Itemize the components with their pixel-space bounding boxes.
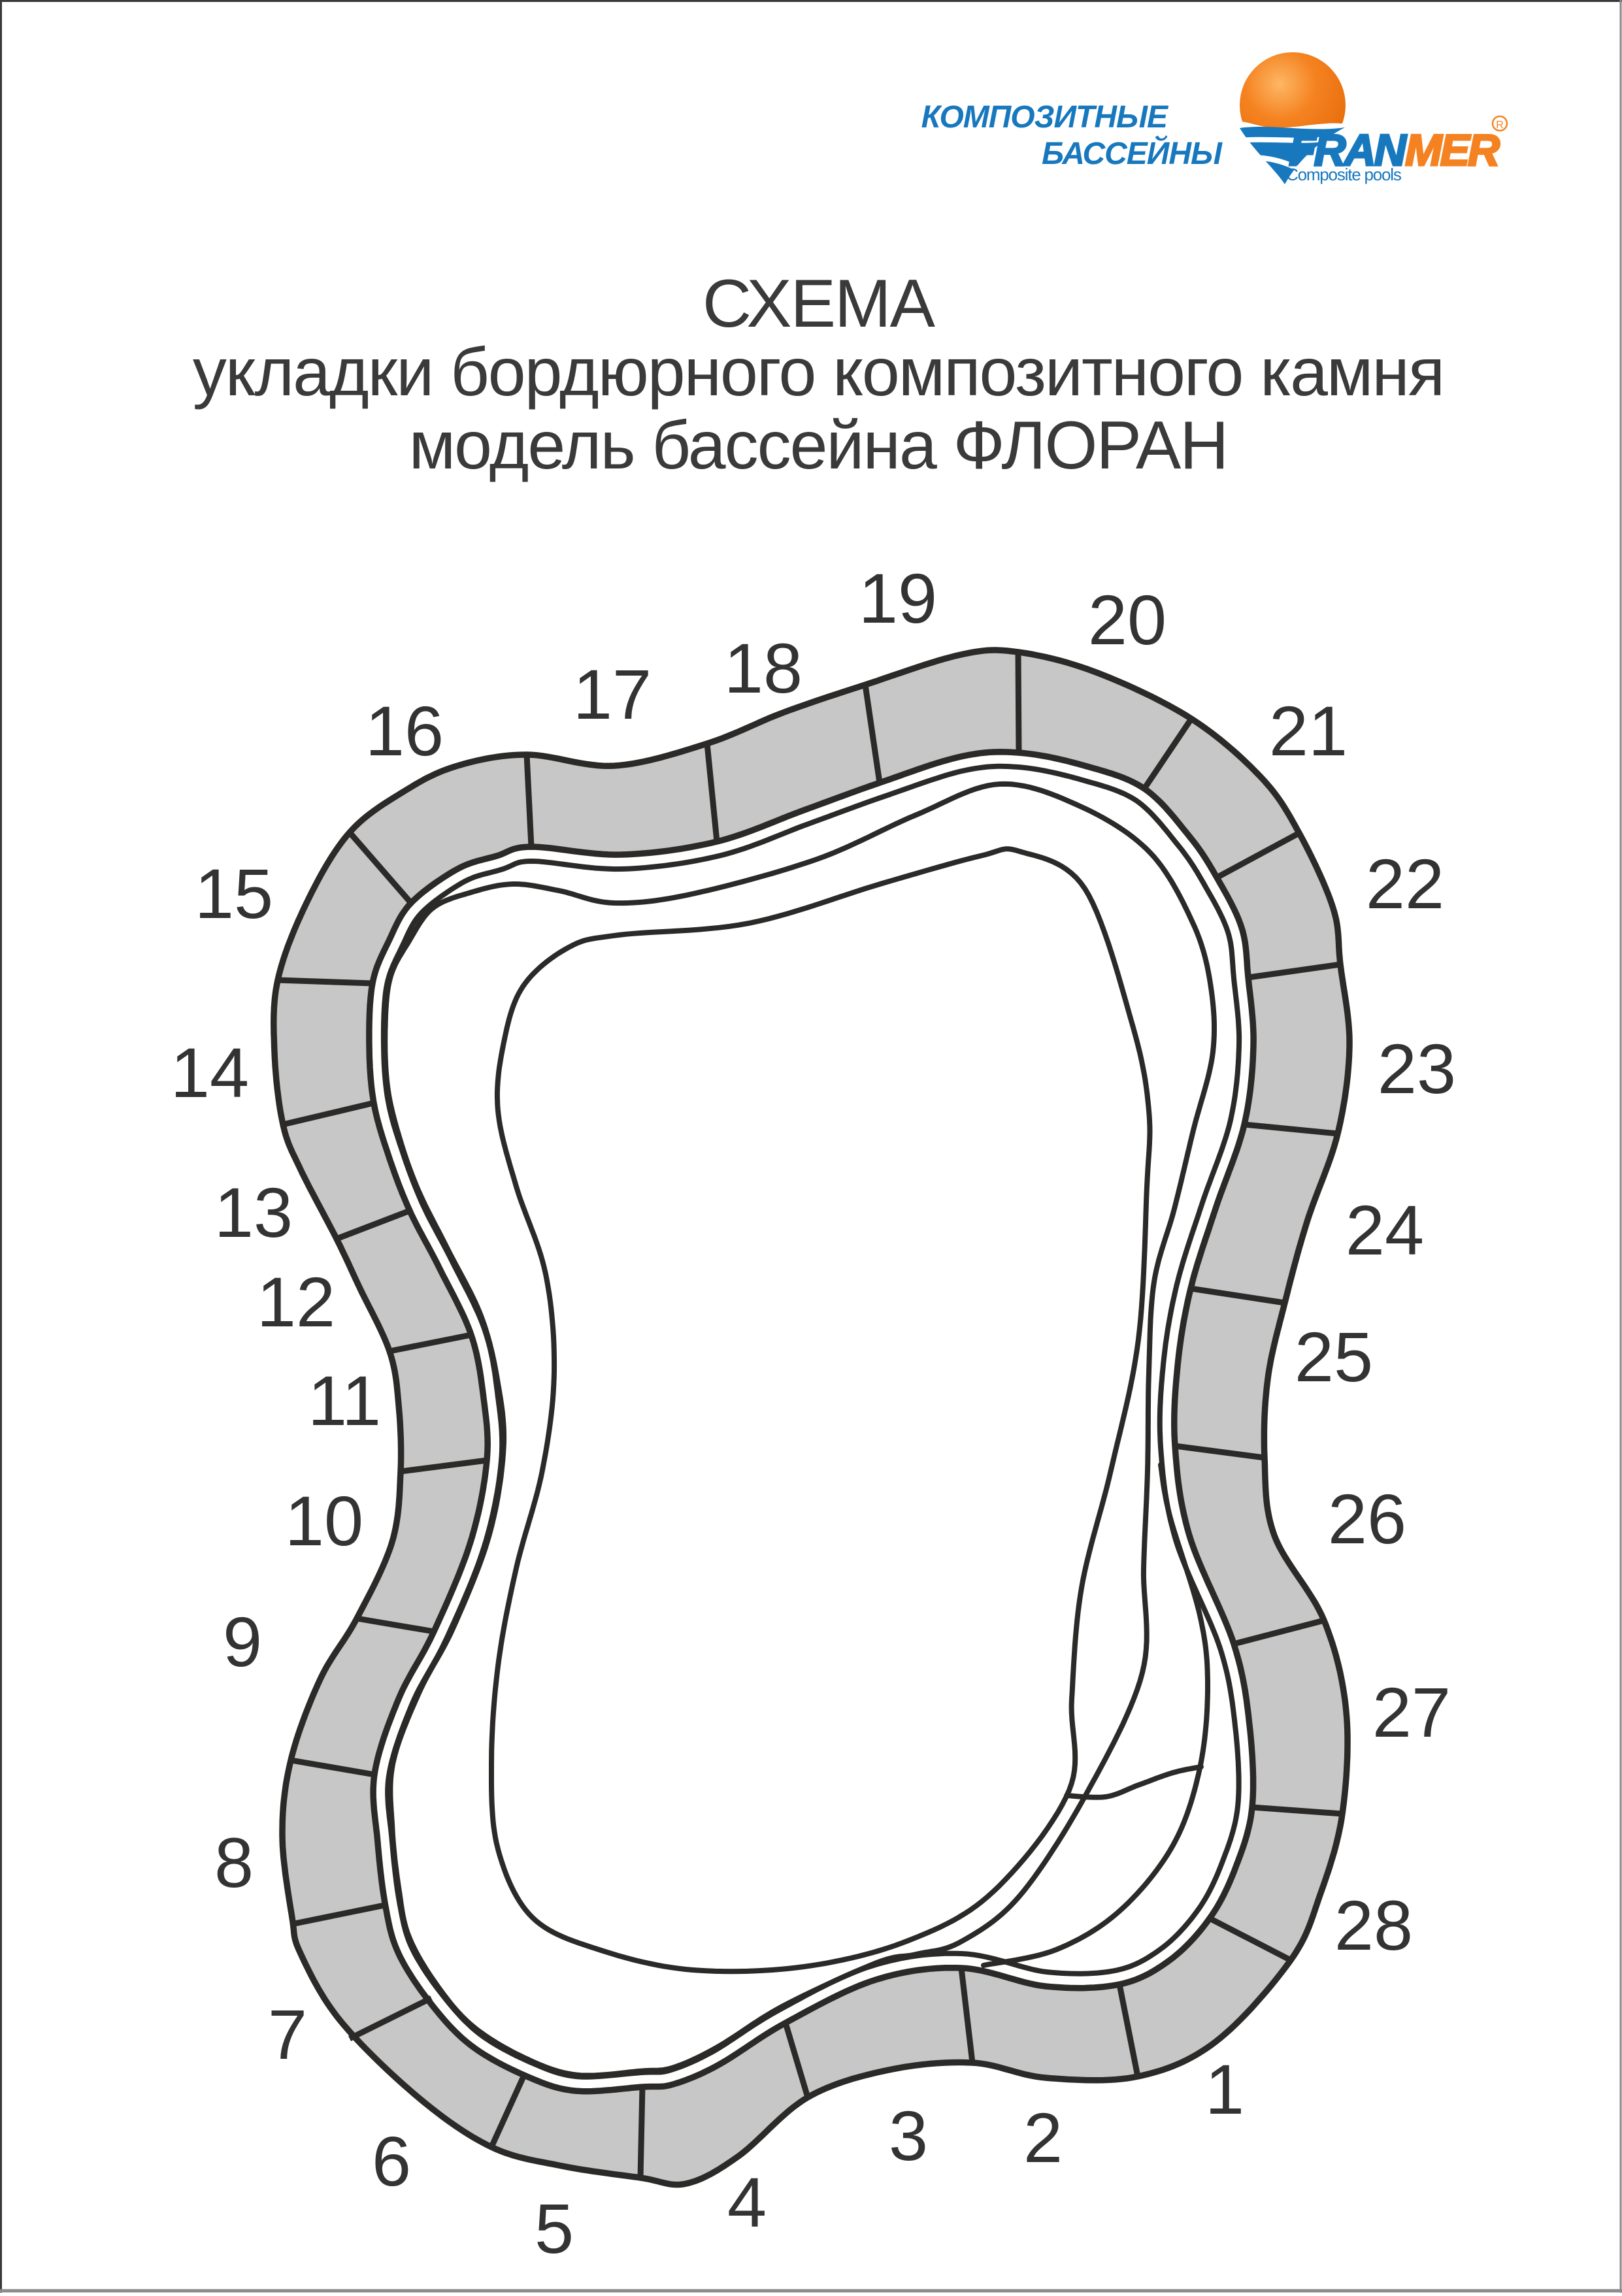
svg-text:21: 21 bbox=[1269, 691, 1348, 770]
svg-text:20: 20 bbox=[1088, 580, 1167, 659]
svg-text:модель бассейна ФЛОРАН: модель бассейна ФЛОРАН bbox=[409, 408, 1228, 484]
svg-text:10: 10 bbox=[285, 1481, 363, 1560]
svg-text:R: R bbox=[1496, 120, 1504, 131]
svg-text:22: 22 bbox=[1366, 844, 1444, 923]
svg-text:27: 27 bbox=[1372, 1673, 1451, 1752]
svg-text:13: 13 bbox=[214, 1173, 293, 1252]
svg-text:БАССЕЙНЫ: БАССЕЙНЫ bbox=[1042, 135, 1223, 171]
svg-text:15: 15 bbox=[195, 854, 273, 933]
svg-text:14: 14 bbox=[171, 1033, 249, 1112]
svg-text:4: 4 bbox=[727, 2163, 767, 2242]
svg-text:17: 17 bbox=[573, 655, 652, 734]
svg-text:24: 24 bbox=[1346, 1190, 1424, 1270]
svg-text:8: 8 bbox=[214, 1823, 254, 1902]
svg-text:2: 2 bbox=[1023, 2098, 1063, 2177]
svg-text:КОМПОЗИТНЫЕ: КОМПОЗИТНЫЕ bbox=[921, 100, 1169, 135]
svg-text:12: 12 bbox=[257, 1262, 335, 1341]
svg-text:Composite pools: Composite pools bbox=[1286, 165, 1402, 184]
svg-text:25: 25 bbox=[1295, 1317, 1373, 1396]
svg-text:7: 7 bbox=[268, 1995, 307, 2074]
svg-text:18: 18 bbox=[724, 629, 803, 708]
svg-text:5: 5 bbox=[535, 2189, 574, 2268]
svg-text:23: 23 bbox=[1378, 1029, 1456, 1108]
svg-text:MER: MER bbox=[1405, 125, 1500, 175]
svg-text:9: 9 bbox=[223, 1602, 262, 1681]
svg-text:16: 16 bbox=[365, 691, 444, 770]
svg-text:1: 1 bbox=[1205, 2050, 1244, 2129]
svg-text:19: 19 bbox=[859, 559, 937, 638]
svg-text:СХЕМА: СХЕМА bbox=[703, 266, 936, 342]
svg-text:6: 6 bbox=[372, 2122, 411, 2201]
svg-text:26: 26 bbox=[1328, 1479, 1406, 1558]
svg-text:укладки бордюрного композитног: укладки бордюрного композитного камня bbox=[193, 335, 1444, 410]
svg-text:11: 11 bbox=[308, 1361, 381, 1440]
svg-text:28: 28 bbox=[1334, 1886, 1413, 1965]
svg-text:3: 3 bbox=[889, 2096, 928, 2175]
